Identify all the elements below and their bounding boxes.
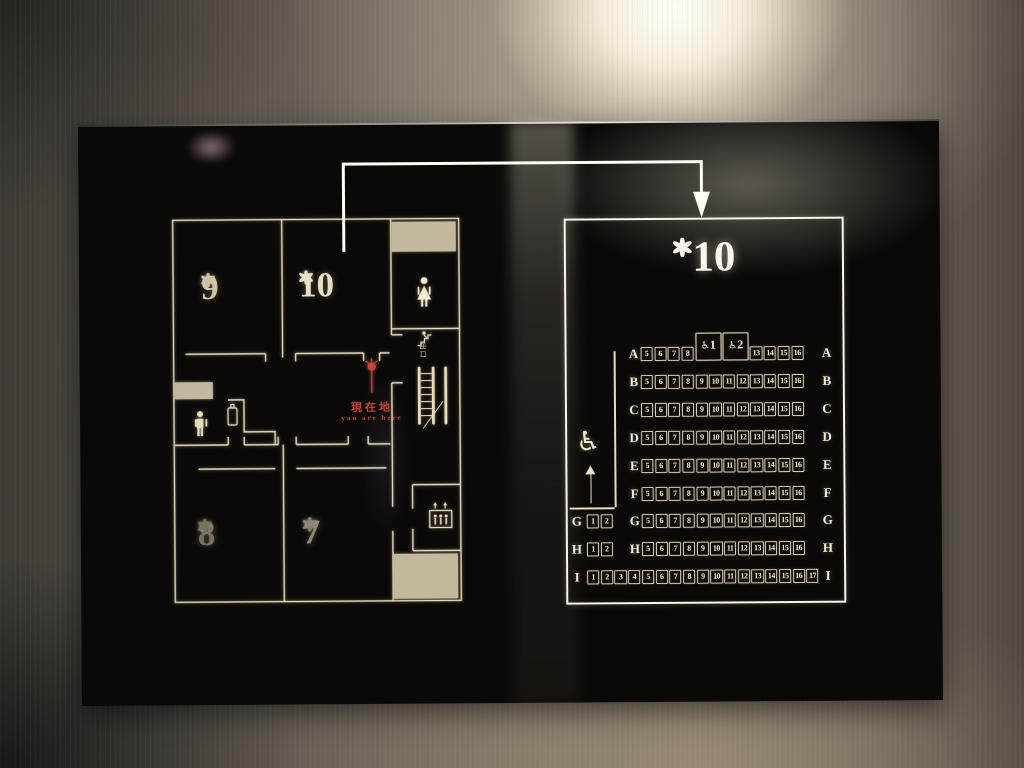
row-letter-F: F bbox=[628, 487, 642, 501]
seat-6: 6 bbox=[654, 375, 666, 389]
seat-5: 5 bbox=[641, 487, 653, 501]
row-letter-G: G bbox=[570, 514, 584, 528]
row-letter-B: B bbox=[627, 375, 641, 389]
seat-17: 17 bbox=[806, 569, 818, 583]
seat-10: 10 bbox=[709, 431, 721, 445]
seat-9: 9 bbox=[696, 459, 708, 473]
seat-9: 9 bbox=[697, 570, 709, 584]
seat-13: 13 bbox=[750, 374, 762, 388]
seat-row-B: B5678910111213141516B bbox=[567, 374, 843, 390]
seat-1: 1 bbox=[587, 514, 599, 528]
seat-15: 15 bbox=[779, 541, 791, 555]
woman-restroom-icon bbox=[417, 277, 431, 306]
row-letter-I: I bbox=[821, 569, 835, 583]
seat-11: 11 bbox=[724, 513, 736, 527]
wheelchair-seat-number: 2 bbox=[737, 337, 743, 351]
seat-8: 8 bbox=[681, 347, 693, 361]
row-letter-H: H bbox=[570, 542, 584, 556]
room-label-10: 10 bbox=[299, 267, 334, 302]
seat-row-I: I1234567891011121314151617I bbox=[568, 569, 844, 585]
seat-7: 7 bbox=[669, 514, 681, 528]
seat-10: 10 bbox=[710, 542, 722, 556]
seat-14: 14 bbox=[765, 569, 777, 583]
seat-15: 15 bbox=[778, 430, 790, 444]
seat-11: 11 bbox=[723, 374, 735, 388]
seat-9: 9 bbox=[697, 542, 709, 556]
seat-11: 11 bbox=[724, 486, 736, 500]
seat-9: 9 bbox=[696, 403, 708, 417]
row-letter-G: G bbox=[628, 514, 642, 528]
seat-6: 6 bbox=[656, 570, 668, 584]
stair-zone-bottom bbox=[394, 553, 458, 598]
seat-2: 2 bbox=[601, 542, 613, 556]
seat-14: 14 bbox=[765, 513, 777, 527]
row-letter-D: D bbox=[627, 431, 641, 445]
screen-number: 10 bbox=[692, 233, 735, 280]
photo-of-cinema-floor-sign: 9 10 8 7 現在地 you are here 出口 bbox=[0, 0, 1024, 768]
room-label-7: 7 bbox=[303, 514, 321, 549]
row-letter-E: E bbox=[820, 458, 834, 472]
seat-row-H: H12H5678910111213141516H bbox=[568, 541, 844, 557]
alcove-zone-left bbox=[175, 382, 213, 399]
seat-13: 13 bbox=[751, 541, 763, 555]
seat-9: 9 bbox=[696, 487, 708, 501]
reflection-spot bbox=[186, 130, 236, 164]
seat-8: 8 bbox=[682, 431, 694, 445]
row-letter-A: A bbox=[820, 346, 834, 360]
seat-6: 6 bbox=[655, 542, 667, 556]
seat-12: 12 bbox=[736, 374, 748, 388]
seat-16: 16 bbox=[792, 486, 804, 500]
you-are-here-marker bbox=[366, 358, 378, 393]
row-letter-E: E bbox=[627, 459, 641, 473]
seat-10: 10 bbox=[710, 514, 722, 528]
seat-14: 14 bbox=[764, 458, 776, 472]
seat-6: 6 bbox=[655, 487, 667, 501]
seat-11: 11 bbox=[724, 569, 736, 583]
seat-7: 7 bbox=[668, 403, 680, 417]
row-letter-H: H bbox=[821, 541, 835, 555]
you-are-here-text-jp: 現在地 bbox=[332, 399, 412, 416]
seat-5: 5 bbox=[642, 514, 654, 528]
sign-panel: 9 10 8 7 現在地 you are here 出口 bbox=[78, 119, 943, 706]
seat-7: 7 bbox=[669, 542, 681, 556]
seat-10: 10 bbox=[710, 459, 722, 473]
seat-7: 7 bbox=[668, 347, 680, 361]
seat-row-F: F5678910111213141516F bbox=[568, 486, 844, 502]
seat-16: 16 bbox=[792, 458, 804, 472]
flower-asterisk-icon bbox=[201, 273, 215, 287]
escalator-exit-label: 出口 bbox=[418, 343, 428, 359]
seat-10: 10 bbox=[709, 403, 721, 417]
seat-14: 14 bbox=[764, 430, 776, 444]
flower-asterisk-icon bbox=[299, 270, 313, 284]
seat-1: 1 bbox=[587, 570, 599, 584]
row-letter-C: C bbox=[820, 402, 834, 416]
seat-8: 8 bbox=[683, 514, 695, 528]
seat-2: 2 bbox=[600, 514, 612, 528]
seat-16: 16 bbox=[792, 541, 804, 555]
seat-5: 5 bbox=[641, 403, 653, 417]
seat-8: 8 bbox=[682, 375, 694, 389]
seat-15: 15 bbox=[778, 458, 790, 472]
seat-8: 8 bbox=[682, 403, 694, 417]
seat-16: 16 bbox=[791, 402, 803, 416]
seat-2: 2 bbox=[601, 570, 613, 584]
seat-1: 1 bbox=[587, 542, 599, 556]
wheelchair-seat-number: 1 bbox=[710, 338, 716, 352]
seat-7: 7 bbox=[668, 375, 680, 389]
seat-12: 12 bbox=[737, 430, 749, 444]
seat-11: 11 bbox=[724, 541, 736, 555]
panel-top-edge-highlight bbox=[78, 119, 939, 127]
row-letter-B: B bbox=[820, 374, 834, 388]
seat-12: 12 bbox=[738, 569, 750, 583]
seat-16: 16 bbox=[793, 569, 805, 583]
seat-11: 11 bbox=[723, 402, 735, 416]
row-letter-I: I bbox=[570, 570, 584, 584]
seat-15: 15 bbox=[779, 569, 791, 583]
seat-14: 14 bbox=[764, 374, 776, 388]
seat-8: 8 bbox=[683, 570, 695, 584]
seat-13: 13 bbox=[751, 430, 763, 444]
room-label-8: 8 bbox=[198, 516, 216, 551]
seat-15: 15 bbox=[779, 513, 791, 527]
seat-10: 10 bbox=[709, 375, 721, 389]
wheelchair-seat-2: ♿2 bbox=[722, 332, 749, 360]
seat-row-A: A5678♿1♿213141516A bbox=[567, 346, 843, 362]
seat-12: 12 bbox=[737, 402, 749, 416]
seat-5: 5 bbox=[642, 570, 654, 584]
seat-6: 6 bbox=[654, 403, 666, 417]
flower-asterisk-icon bbox=[198, 519, 212, 533]
seat-13: 13 bbox=[751, 458, 763, 472]
flower-asterisk-icon bbox=[672, 238, 691, 257]
seat-9: 9 bbox=[696, 431, 708, 445]
seat-11: 11 bbox=[723, 458, 735, 472]
seat-8: 8 bbox=[682, 487, 694, 501]
seat-12: 12 bbox=[737, 458, 749, 472]
seat-5: 5 bbox=[641, 459, 653, 473]
room-label-9: 9 bbox=[201, 270, 219, 305]
seat-14: 14 bbox=[765, 541, 777, 555]
you-are-here-text-en: you are here bbox=[327, 414, 417, 423]
seat-5: 5 bbox=[641, 375, 653, 389]
seat-16: 16 bbox=[792, 430, 804, 444]
seat-7: 7 bbox=[668, 431, 680, 445]
seat-row-G: G12G5678910111213141516G bbox=[568, 513, 844, 529]
wheelchair-icon: ♿ bbox=[728, 340, 737, 351]
seat-10: 10 bbox=[710, 487, 722, 501]
seat-4: 4 bbox=[628, 570, 640, 584]
row-letter-A: A bbox=[627, 347, 641, 361]
seat-5: 5 bbox=[641, 431, 653, 445]
wheelchair-path-line bbox=[570, 507, 615, 509]
seat-6: 6 bbox=[655, 431, 667, 445]
seat-15: 15 bbox=[778, 374, 790, 388]
floor-plan: 9 10 8 7 現在地 you are here 出口 bbox=[171, 216, 466, 606]
seat-3: 3 bbox=[614, 570, 626, 584]
screen-title: 10 bbox=[566, 235, 842, 280]
row-letter-D: D bbox=[820, 430, 834, 444]
screen-10-seatmap-panel: 10 ♿ A5678♿1♿213141516AB5678910111213141… bbox=[564, 217, 847, 605]
seat-8: 8 bbox=[683, 542, 695, 556]
seat-7: 7 bbox=[669, 459, 681, 473]
seat-12: 12 bbox=[738, 541, 750, 555]
seat-14: 14 bbox=[764, 402, 776, 416]
seat-16: 16 bbox=[791, 346, 803, 360]
seat-row-E: E5678910111213141516E bbox=[567, 458, 843, 474]
row-letter-F: F bbox=[821, 486, 835, 500]
row-letter-C: C bbox=[627, 403, 641, 417]
seat-13: 13 bbox=[750, 402, 762, 416]
wheelchair-seat-1: ♿1 bbox=[695, 333, 722, 361]
seat-9: 9 bbox=[695, 375, 707, 389]
seat-12: 12 bbox=[737, 486, 749, 500]
flower-asterisk-icon bbox=[303, 517, 317, 531]
seat-12: 12 bbox=[737, 513, 749, 527]
seat-row-D: D5678910111213141516D bbox=[567, 430, 843, 446]
seat-7: 7 bbox=[669, 570, 681, 584]
seat-15: 15 bbox=[778, 402, 790, 416]
seat-14: 14 bbox=[765, 486, 777, 500]
seat-5: 5 bbox=[640, 347, 652, 361]
man-restroom-icon bbox=[195, 411, 208, 436]
seat-13: 13 bbox=[751, 569, 763, 583]
row-letter-H: H bbox=[628, 542, 642, 556]
seat-7: 7 bbox=[669, 487, 681, 501]
seat-16: 16 bbox=[792, 513, 804, 527]
seat-16: 16 bbox=[791, 374, 803, 388]
seat-6: 6 bbox=[655, 514, 667, 528]
seat-13: 13 bbox=[751, 486, 763, 500]
seat-13: 13 bbox=[751, 513, 763, 527]
seat-15: 15 bbox=[777, 346, 789, 360]
seat-13: 13 bbox=[750, 346, 762, 360]
seat-14: 14 bbox=[764, 346, 776, 360]
wheelchair-icon: ♿ bbox=[701, 341, 710, 352]
vending-machine-icon bbox=[228, 404, 237, 425]
row-letter-G: G bbox=[821, 513, 835, 527]
seat-10: 10 bbox=[710, 570, 722, 584]
seat-9: 9 bbox=[696, 514, 708, 528]
seat-6: 6 bbox=[655, 459, 667, 473]
seat-8: 8 bbox=[682, 459, 694, 473]
seat-15: 15 bbox=[778, 486, 790, 500]
elevator-icon bbox=[430, 502, 452, 528]
seat-map: A5678♿1♿213141516AB5678910111213141516BC… bbox=[566, 219, 842, 221]
seat-6: 6 bbox=[654, 347, 666, 361]
seat-5: 5 bbox=[642, 542, 654, 556]
seat-row-C: C5678910111213141516C bbox=[567, 402, 843, 418]
seat-11: 11 bbox=[723, 430, 735, 444]
